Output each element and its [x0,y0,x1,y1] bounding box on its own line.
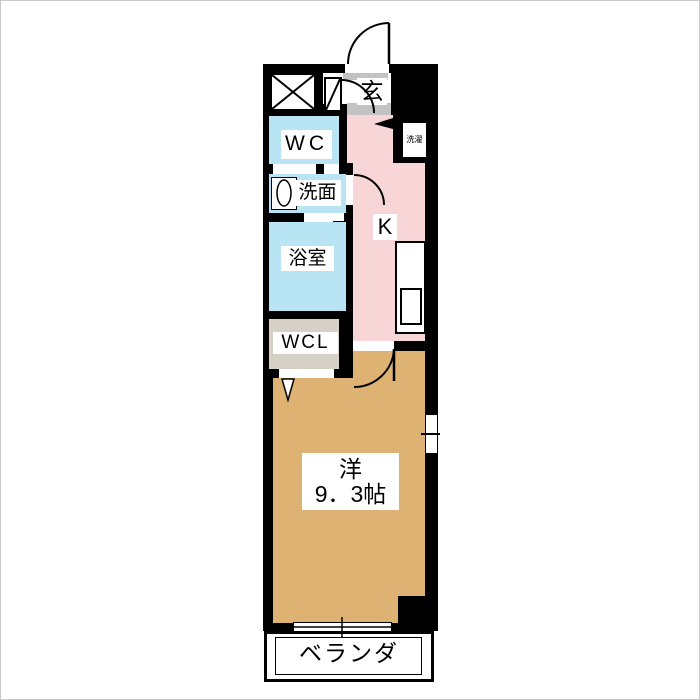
laundry-label: 洗濯 [407,136,423,144]
laundry-space: 洗濯 [401,121,428,159]
genkan-label: 玄 [357,78,387,105]
corner-wall-block [398,596,425,623]
bath-label: 浴室 [281,246,334,271]
kitchen-sink [400,288,422,325]
shoe-cabinet [324,77,342,112]
wc-label: WC [281,130,332,159]
wc-door-track [273,164,339,174]
western-room-name: 洋 [339,457,362,481]
western-label: 洋 9．3帖 [302,453,399,510]
room-kitchen-upper [347,115,393,163]
wc-door-stop [316,164,324,174]
western-door-gap [353,341,394,351]
entrance-door-swing [348,23,389,64]
side-window [425,414,438,454]
washroom-label: 洗面 [294,180,341,206]
kitchen-label: K [373,214,397,240]
floorplan-canvas: 洗濯 WC 洗面 浴室 WCL 洋 9．3帖 ベランダ 玄 K [0,0,700,700]
pipe-space-box [270,73,316,111]
veranda-label: ベランダ [284,639,414,667]
western-room-size: 9．3帖 [315,482,387,506]
wcl-label: WCL [273,332,338,354]
room-western-upper [353,351,425,378]
washroom-door-gap [346,175,353,205]
